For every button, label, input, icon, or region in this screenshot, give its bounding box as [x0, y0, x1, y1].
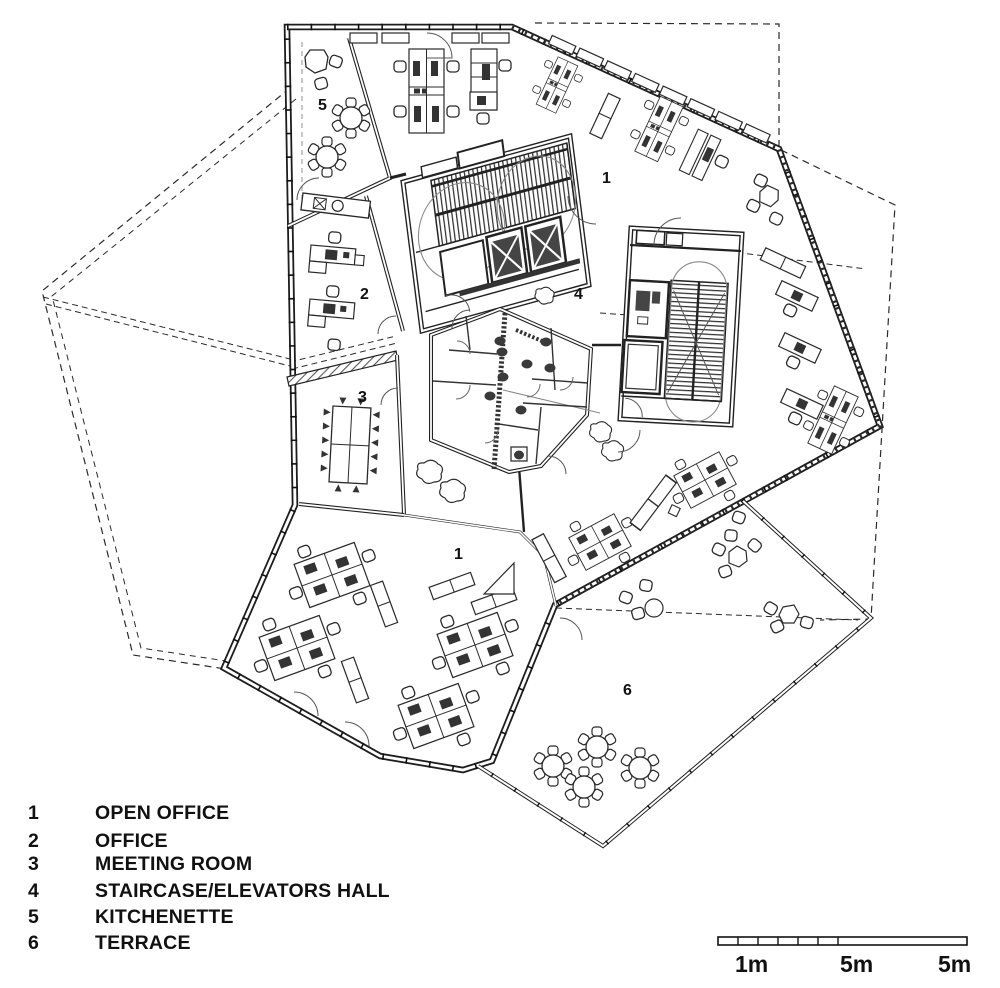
svg-text:5m: 5m: [938, 951, 971, 977]
svg-text:6: 6: [623, 682, 632, 699]
svg-text:5: 5: [28, 906, 39, 928]
svg-text:2: 2: [28, 830, 39, 852]
svg-text:2: 2: [360, 286, 369, 303]
svg-text:6: 6: [28, 932, 39, 954]
svg-text:1: 1: [454, 546, 463, 563]
svg-text:OPEN OFFICE: OPEN OFFICE: [95, 802, 229, 824]
svg-text:4: 4: [28, 880, 39, 902]
svg-text:TERRACE: TERRACE: [95, 932, 191, 954]
svg-text:MEETING ROOM: MEETING ROOM: [95, 853, 252, 875]
svg-text:1m: 1m: [735, 951, 768, 977]
svg-text:OFFICE: OFFICE: [95, 830, 168, 852]
svg-text:3: 3: [358, 389, 367, 406]
svg-text:KITCHENETTE: KITCHENETTE: [95, 906, 234, 928]
svg-text:1: 1: [602, 170, 611, 187]
svg-text:5m: 5m: [840, 951, 873, 977]
svg-text:5: 5: [318, 97, 327, 114]
svg-text:4: 4: [574, 286, 583, 303]
svg-text:STAIRCASE/ELEVATORS HALL: STAIRCASE/ELEVATORS HALL: [95, 880, 390, 902]
svg-text:3: 3: [28, 853, 39, 875]
svg-text:1: 1: [28, 802, 39, 824]
